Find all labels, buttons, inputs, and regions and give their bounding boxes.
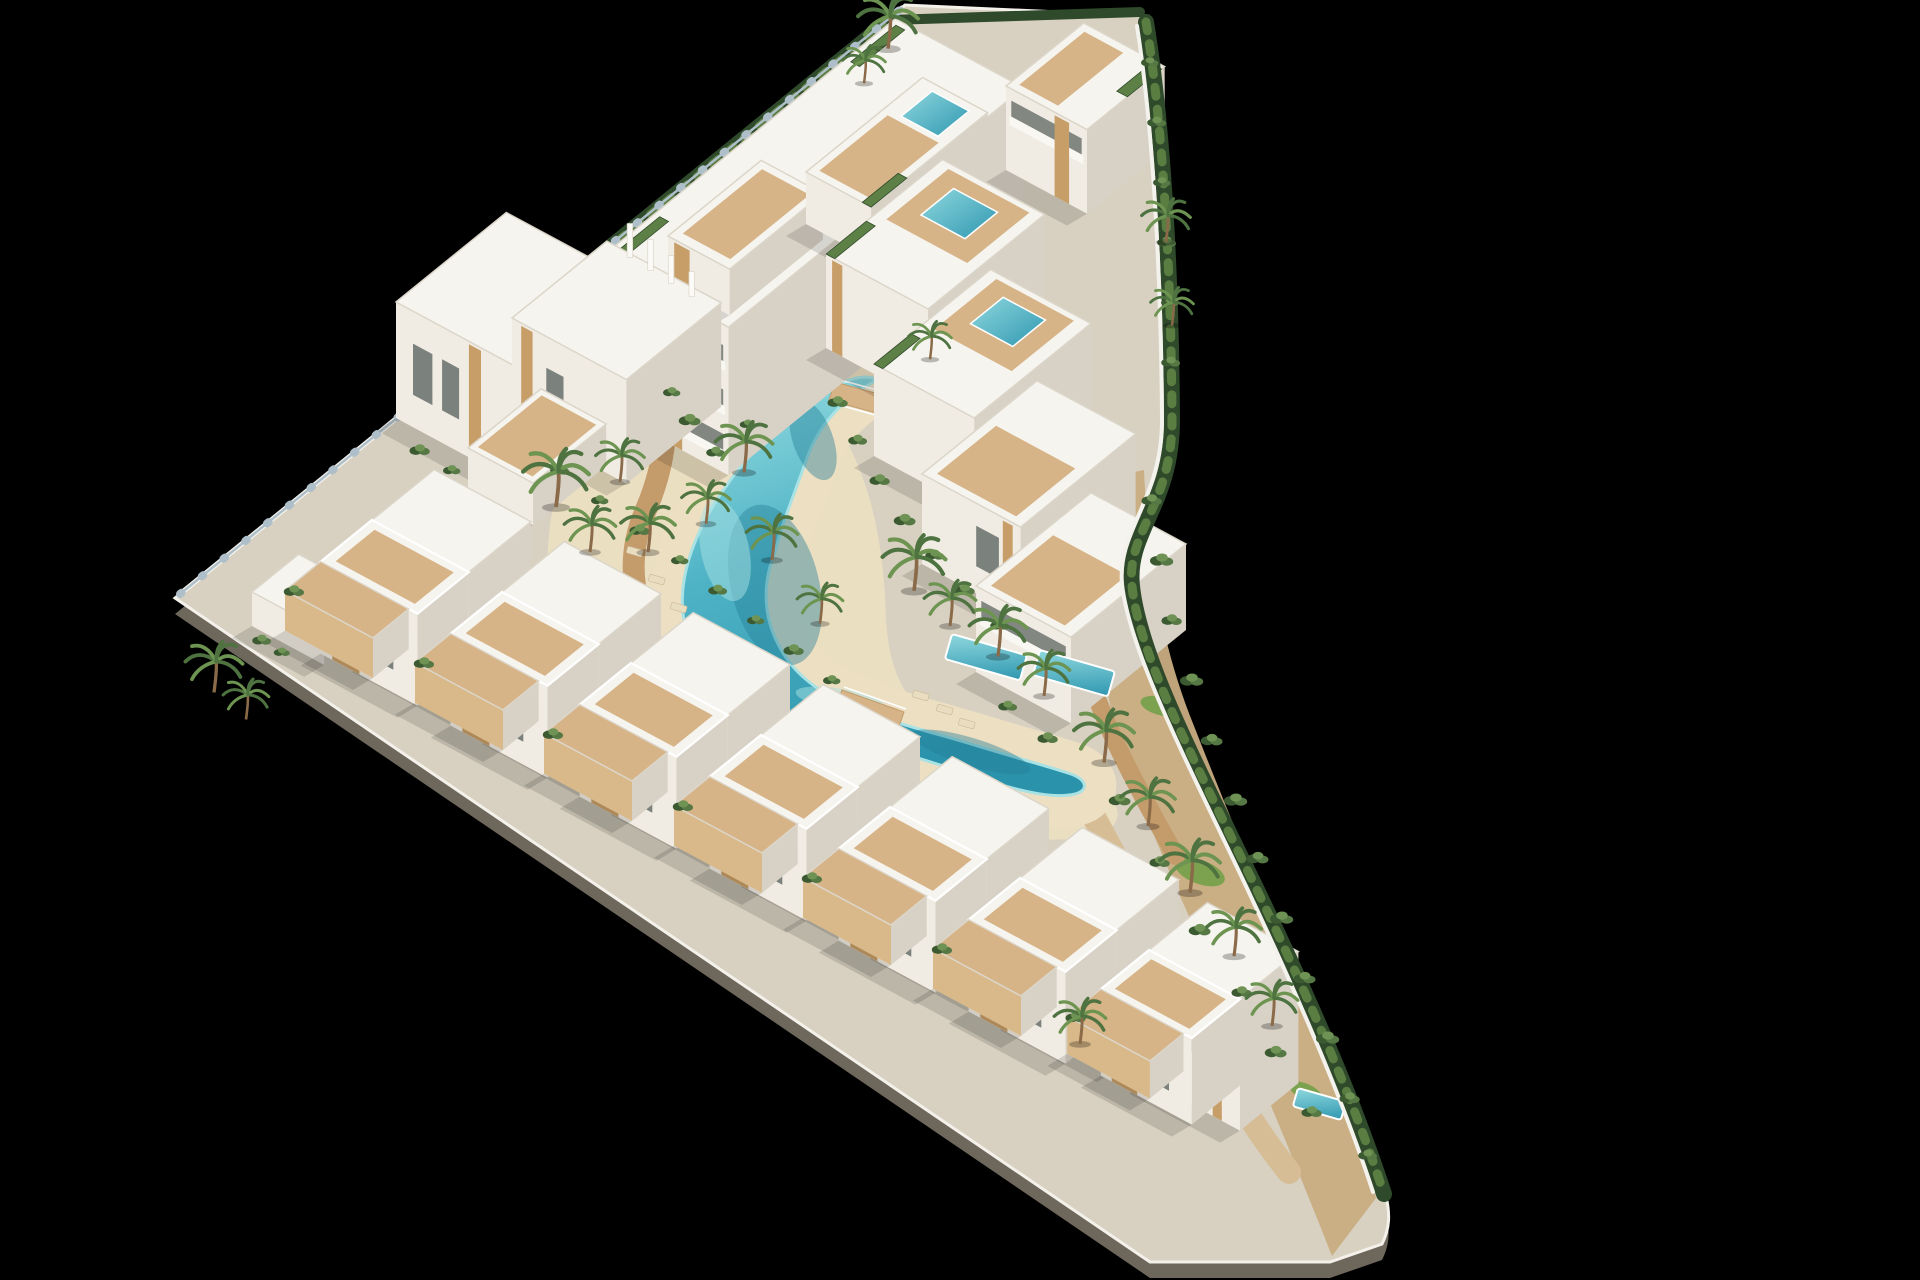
window bbox=[442, 359, 459, 419]
render-stage bbox=[0, 0, 1920, 1280]
parapet-fin bbox=[689, 272, 695, 297]
parapet-fin bbox=[668, 256, 674, 284]
parapet-fin bbox=[648, 240, 654, 271]
parapet-fin bbox=[627, 223, 633, 257]
wood-cladding bbox=[1055, 115, 1070, 204]
aerial-render-canvas bbox=[0, 0, 1920, 1280]
wood-cladding bbox=[832, 260, 842, 357]
window bbox=[413, 344, 432, 406]
